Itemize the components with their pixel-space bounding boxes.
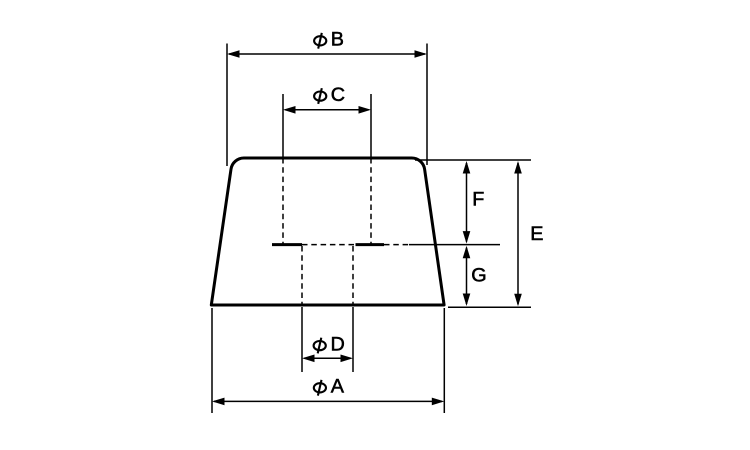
svg-text:D: D [331, 333, 345, 355]
svg-text:C: C [331, 84, 345, 106]
svg-text:B: B [331, 29, 344, 51]
svg-text:E: E [530, 223, 543, 245]
svg-text:A: A [331, 376, 345, 398]
svg-text:G: G [471, 264, 486, 286]
svg-text:F: F [472, 188, 484, 210]
